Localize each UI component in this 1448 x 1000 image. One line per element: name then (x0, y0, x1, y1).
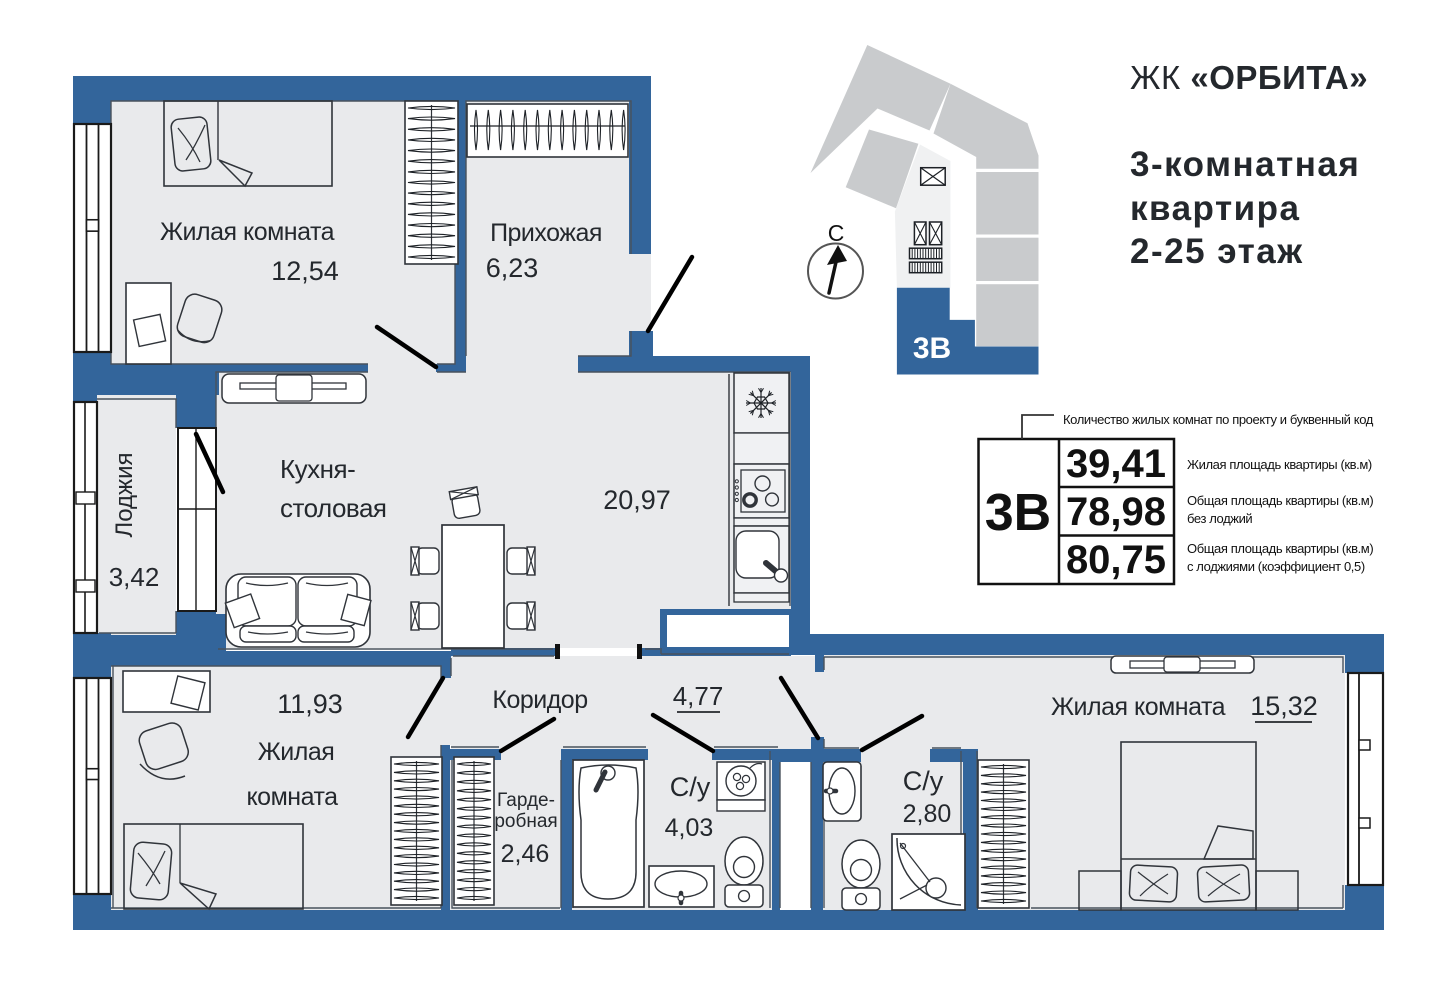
svg-text:39,41: 39,41 (1066, 442, 1166, 486)
svg-text:2-25 этаж: 2-25 этаж (1130, 232, 1304, 271)
svg-text:Общая площадь квартиры (кв.м): Общая площадь квартиры (кв.м) (1187, 493, 1373, 508)
svg-text:квартира: квартира (1130, 189, 1300, 228)
svg-text:Жилая комната: Жилая комната (1051, 693, 1226, 721)
svg-text:3,42: 3,42 (109, 562, 160, 592)
svg-text:Коридор: Коридор (492, 686, 587, 714)
svg-text:80,75: 80,75 (1066, 538, 1166, 582)
svg-text:ЖК «ОРБИТА»: ЖК «ОРБИТА» (1130, 59, 1368, 96)
svg-text:Жилая комната: Жилая комната (160, 218, 335, 246)
svg-text:78,98: 78,98 (1066, 490, 1166, 534)
svg-text:Кухня-: Кухня- (280, 454, 355, 484)
svg-text:С/у: С/у (903, 766, 944, 796)
svg-text:робная: робная (494, 811, 557, 832)
svg-text:Жилая: Жилая (258, 738, 335, 766)
svg-text:С/у: С/у (670, 772, 711, 802)
svg-text:Прихожая: Прихожая (490, 219, 602, 247)
svg-text:Лоджия: Лоджия (111, 452, 138, 537)
svg-text:без лоджий: без лоджий (1187, 511, 1252, 526)
svg-text:3В: 3В (913, 332, 951, 365)
svg-text:Гарде-: Гарде- (497, 790, 555, 811)
svg-text:с лоджиями (коэффициент 0,5): с лоджиями (коэффициент 0,5) (1187, 559, 1365, 574)
svg-text:2,80: 2,80 (903, 800, 952, 828)
svg-text:4,03: 4,03 (665, 814, 714, 842)
svg-text:3-комнатная: 3-комнатная (1130, 145, 1360, 184)
svg-text:столовая: столовая (280, 493, 387, 523)
svg-text:С: С (828, 220, 845, 246)
svg-text:Жилая площадь квартиры (кв.м): Жилая площадь квартиры (кв.м) (1187, 457, 1372, 472)
svg-text:12,54: 12,54 (271, 256, 339, 286)
svg-text:4,77: 4,77 (673, 681, 724, 711)
svg-text:20,97: 20,97 (603, 485, 671, 515)
svg-text:11,93: 11,93 (277, 689, 343, 719)
svg-text:комната: комната (246, 783, 338, 811)
svg-text:15,32: 15,32 (1250, 691, 1318, 721)
svg-text:Количество жилых комнат по про: Количество жилых комнат по проекту и бук… (1063, 412, 1374, 427)
svg-text:2,46: 2,46 (501, 840, 550, 868)
svg-text:6,23: 6,23 (486, 253, 539, 283)
svg-text:Общая площадь квартиры (кв.м): Общая площадь квартиры (кв.м) (1187, 541, 1373, 556)
svg-text:3В: 3В (985, 484, 1051, 542)
